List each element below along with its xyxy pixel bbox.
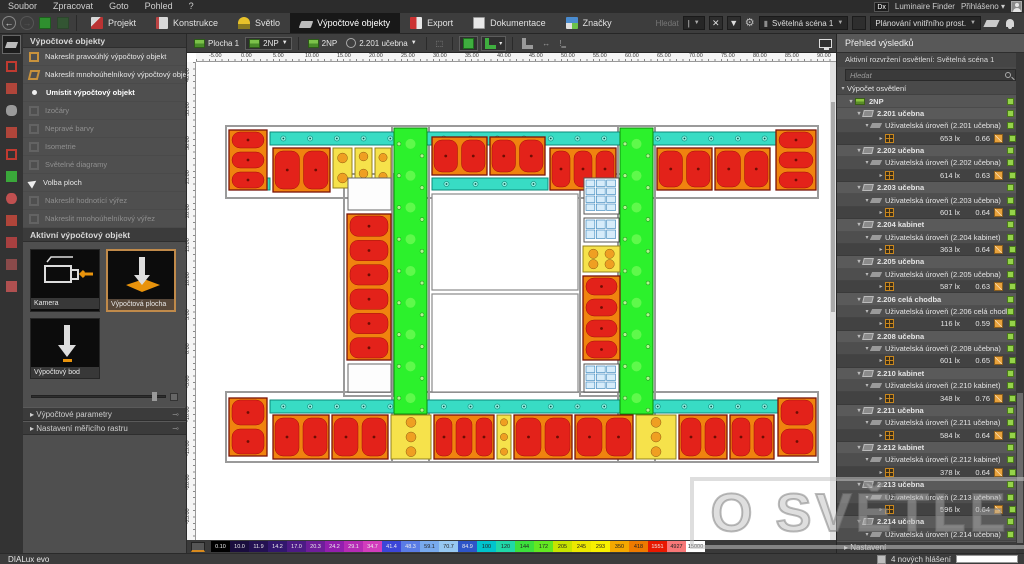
scene-tool-button[interactable] xyxy=(852,16,866,30)
status-green-square xyxy=(1007,382,1014,389)
account-menu[interactable]: Přihlášeno ▾ xyxy=(961,2,1005,11)
chevron-right-icon[interactable]: ▸ xyxy=(877,135,885,142)
legend-segment: 144 xyxy=(515,541,534,552)
raster-icon[interactable] xyxy=(3,278,20,295)
floor-icon xyxy=(855,98,865,105)
chevron-right-icon[interactable]: ▸ xyxy=(877,506,885,513)
status-green-square xyxy=(1007,407,1014,414)
tree-room[interactable]: ▾2.208 učebna xyxy=(837,331,1017,343)
tree-room[interactable]: ▾2.210 kabinet xyxy=(837,368,1017,380)
illuminance-value: 596 lx xyxy=(898,505,960,514)
section-view-button[interactable] xyxy=(519,37,536,50)
grid-result-icon xyxy=(885,505,894,514)
tree-value[interactable]: ▸584 lx0.64 xyxy=(837,430,1017,442)
tree-level[interactable]: ▾Uživatelská úroveň (2.214 učebna) xyxy=(837,529,1017,541)
section-2[interactable]: ▸ Nastavení měřicího rastru⊸ xyxy=(23,421,186,435)
tree-level[interactable]: ▾Uživatelská úroveň (2.210 kabinet) xyxy=(837,380,1017,392)
room-label: 2.205 učebna xyxy=(877,257,1007,266)
display-settings-icon[interactable] xyxy=(819,39,832,48)
tool-item-9: Nakreslit hodnotící výřez xyxy=(23,192,186,210)
legend-segment: 120 xyxy=(496,541,515,552)
room-icon xyxy=(862,407,874,414)
cube-icon[interactable] xyxy=(3,58,20,75)
room-icon xyxy=(862,221,874,228)
poly-icon xyxy=(28,70,40,80)
messages-icon[interactable] xyxy=(877,555,886,564)
plan-room-red[interactable] xyxy=(229,398,267,456)
chevron-right-icon[interactable]: ▸ xyxy=(877,395,885,402)
ruler-v-label: 40.00 xyxy=(185,68,191,82)
annotation-button[interactable]: !‗ xyxy=(556,38,569,49)
plan-room-outline[interactable] xyxy=(432,294,578,392)
results-search-input[interactable]: Hledat xyxy=(845,69,1016,81)
chevron-right-icon[interactable]: ▸ xyxy=(877,246,885,253)
surface-indicator[interactable]: Plocha 1 xyxy=(191,38,242,49)
tool-item-label: Nakreslit mnohoúhelníkový výpočtový obje… xyxy=(45,70,186,79)
level-label: Uživatelská úroveň (2.206 celá chodba) xyxy=(885,307,1007,316)
opening-icon[interactable] xyxy=(3,124,20,141)
gear-icon[interactable]: ⚙ xyxy=(745,16,755,30)
room-icon xyxy=(862,444,874,451)
plan-room-red[interactable] xyxy=(273,415,329,459)
tree-value[interactable]: ▸614 lx0.63 xyxy=(837,170,1017,182)
chevron-down-icon[interactable]: ▾ xyxy=(847,98,855,105)
menu-bar: SouborZpracovatGotoPohled? Dx Luminaire … xyxy=(0,0,1024,13)
tile-v-po-tov-bod[interactable]: Výpočtový bod xyxy=(30,318,100,379)
planning-mode-select[interactable]: Plánování vnitřního prost.▼ xyxy=(870,16,981,30)
tab-label: Světlo xyxy=(255,18,280,28)
plan-room-green[interactable] xyxy=(620,128,653,414)
illuminance-value: 653 lx xyxy=(898,134,960,143)
status-green-square xyxy=(1007,419,1014,426)
tile-kamera[interactable]: Kamera xyxy=(30,249,100,312)
ruler-h-label: 10.00 xyxy=(305,53,319,59)
status-green-square xyxy=(1007,481,1014,488)
tree-room[interactable]: ▾2.211 učebna xyxy=(837,405,1017,417)
tree-room[interactable]: ▾2.212 kabinet xyxy=(837,442,1017,454)
ruler-h-label: -5.00 xyxy=(209,53,222,59)
object-size-slider[interactable] xyxy=(31,392,178,401)
menu-item-goto[interactable]: Goto xyxy=(101,0,137,13)
light-scene-select[interactable]: ▮Světelná scéna 1▼ xyxy=(759,16,849,30)
tree-value[interactable]: ▸601 lx0.64 xyxy=(837,207,1017,219)
plan-room-yellow[interactable] xyxy=(497,415,511,459)
plan-room-white[interactable] xyxy=(348,364,391,392)
results-title: Přehled výsledků xyxy=(837,34,1024,53)
chevron-down-icon[interactable]: ▾ xyxy=(839,85,847,92)
clear-search-button[interactable]: ✕ xyxy=(709,16,723,30)
panel-title: Výpočtové objekty xyxy=(23,34,186,48)
furniture-icon[interactable] xyxy=(3,80,20,97)
wall-icon[interactable] xyxy=(3,234,20,251)
tab-label: Projekt xyxy=(108,18,136,28)
tab-export[interactable]: Export xyxy=(400,13,463,33)
room-label: 2.203 učebna xyxy=(877,183,1007,192)
legend-segment: 245 xyxy=(572,541,591,552)
tree-room[interactable]: ▾2.203 učebna xyxy=(837,182,1017,194)
plan-room-red[interactable] xyxy=(575,415,633,459)
ruler-h-label: 35.00 xyxy=(465,53,479,59)
surface-color-swatch xyxy=(994,245,1003,254)
slider-button[interactable] xyxy=(170,393,178,401)
calculation-objects-tool xyxy=(5,42,18,48)
grid-result-icon xyxy=(885,282,894,291)
tree-level[interactable]: ▾Uživatelská úroveň (2.208 učebna) xyxy=(837,343,1017,355)
legend-segment: 0.10 xyxy=(211,541,230,552)
uniformity-value: 0.64 xyxy=(960,505,990,514)
falsecolor-toggle[interactable] xyxy=(459,36,478,51)
grid-result-icon xyxy=(885,356,894,365)
status-green-square xyxy=(1007,370,1014,377)
legend-segments: 0.1010.011.914.217.020.324.229.134.741.4… xyxy=(211,541,705,552)
plan-room-red[interactable] xyxy=(273,148,330,192)
tree-value[interactable]: ▸116 lx0.59 xyxy=(837,318,1017,330)
status-green-square xyxy=(1007,221,1014,228)
status-green-square xyxy=(1007,147,1014,154)
plan-room-red[interactable] xyxy=(583,276,620,360)
tool-item-label: Nepravé barvy xyxy=(45,124,94,133)
room-contour-icon[interactable] xyxy=(3,146,20,163)
calc-surface-icon xyxy=(870,383,882,388)
calculation-objects-tool[interactable] xyxy=(3,36,20,53)
section-1[interactable]: ▸ Výpočtové parametry⊸ xyxy=(23,407,186,421)
chevron-right-icon[interactable]: ▸ xyxy=(877,209,885,216)
surface-icon xyxy=(194,39,205,48)
tree-room[interactable]: ▾2.205 učebna xyxy=(837,256,1017,268)
tool-item-8[interactable]: Volba ploch xyxy=(23,174,186,192)
plan-room-red[interactable] xyxy=(657,148,712,190)
tab-svetlo[interactable]: Světlo xyxy=(228,13,290,33)
falsecolor-legend-icon[interactable] xyxy=(191,542,205,552)
grid-result-icon xyxy=(885,171,894,180)
menu-item-?[interactable]: ? xyxy=(181,0,202,13)
plan-room-yellow[interactable] xyxy=(583,246,620,272)
v-po-tov-bod-icon xyxy=(31,319,99,367)
window-icon[interactable] xyxy=(3,256,20,273)
ruler-v-label: -15.00 xyxy=(185,440,191,456)
plan-room-green[interactable] xyxy=(394,128,427,414)
dokumentace-icon xyxy=(473,17,485,29)
emergency-sign-icon xyxy=(6,171,17,182)
plan-room-yellow[interactable] xyxy=(391,415,431,459)
illuminance-value: 363 lx xyxy=(898,245,960,254)
plan-room-red[interactable] xyxy=(778,398,816,456)
ghost-icon xyxy=(29,124,39,134)
tool-item-label: Světelné diagramy xyxy=(45,160,107,169)
tool-item-2[interactable]: Nakreslit mnohoúhelníkový výpočtový obje… xyxy=(23,66,186,84)
import-icon[interactable] xyxy=(57,17,69,29)
storey-icon xyxy=(249,39,260,48)
ruler-h-label: 70.00 xyxy=(689,53,703,59)
ruler-h-label: 25.00 xyxy=(401,53,415,59)
floor-label: 2NP xyxy=(869,97,1007,106)
wall-icon xyxy=(6,237,17,248)
notifications-bell-icon[interactable] xyxy=(1006,19,1014,27)
status-green-square xyxy=(1007,333,1014,340)
status-green-square xyxy=(1009,283,1016,290)
search-combo[interactable]: |▼ xyxy=(683,16,705,30)
forward-button[interactable]: → xyxy=(20,16,34,30)
plan-room-cyan[interactable] xyxy=(270,400,778,413)
legend-segment: 84.9 xyxy=(458,541,477,552)
tab-znacky[interactable]: Značky xyxy=(556,13,622,33)
tree-value[interactable]: ▸378 lx0.64 xyxy=(837,467,1017,479)
plan-room-outline[interactable] xyxy=(432,194,578,290)
toolbar-right: Hledat |▼ ✕ ▼ ⚙ ▮Světelná scéna 1▼ Pláno… xyxy=(656,13,1024,33)
tree-level[interactable]: ▾Uživatelská úroveň (2.201 učebna) xyxy=(837,120,1017,132)
ruler-h-label: 90.00 xyxy=(817,53,831,59)
room-label: 2.213 učebna xyxy=(877,480,1007,489)
tree-value[interactable]: ▸601 lx0.65 xyxy=(837,355,1017,367)
plan-room-red[interactable] xyxy=(776,130,816,190)
level-label: Uživatelská úroveň (2.203 učebna) xyxy=(885,196,1007,205)
plan-room-red[interactable] xyxy=(730,415,774,459)
emergency-sign-icon[interactable] xyxy=(3,168,20,185)
plan-room-util[interactable] xyxy=(584,364,619,392)
illuminance-value: 601 lx xyxy=(898,356,960,365)
room-label: 2.208 učebna xyxy=(877,332,1007,341)
legend-segment: 1551 xyxy=(648,541,667,552)
uniformity-value: 0.64 xyxy=(960,468,990,477)
pin-icon: ⊸ xyxy=(172,422,179,434)
tree-room[interactable]: ▾2.206 celá chodba xyxy=(837,293,1017,305)
storey-select[interactable]: 2NP▼ xyxy=(245,37,292,50)
tree-room[interactable]: ▾2.201 učebna xyxy=(837,108,1017,120)
room-label: 2.201 učebna xyxy=(877,109,1007,118)
plan-room-util[interactable] xyxy=(584,178,619,214)
status-input[interactable] xyxy=(956,555,1018,563)
plan-room-red[interactable] xyxy=(490,137,545,175)
level-label: Uživatelská úroveň (2.214 učebna) xyxy=(885,530,1007,539)
tree-value[interactable]: ▸348 lx0.76 xyxy=(837,392,1017,404)
cad-viewport[interactable]: -5.000.005.0010.0015.0020.0025.0030.0035… xyxy=(187,53,836,540)
ruler-v-label: 30.00 xyxy=(185,136,191,150)
luminaire-finder-link[interactable]: Luminaire Finder xyxy=(895,2,955,11)
active-object-tiles: KameraVýpočtová plochaVýpočtový bod xyxy=(23,242,186,386)
tool-item-1[interactable]: Nakreslit pravoúhlý výpočtový objekt xyxy=(23,48,186,66)
menu-item-soubor[interactable]: Soubor xyxy=(0,0,45,13)
status-green-square xyxy=(1009,432,1016,439)
tab-vypocet[interactable]: Výpočtové objekty xyxy=(290,13,400,33)
plan-room-red[interactable] xyxy=(332,415,388,459)
chevron-right-icon[interactable]: ▸ xyxy=(877,283,885,290)
tree-value[interactable]: ▸363 lx0.64 xyxy=(837,244,1017,256)
results-scrollbar[interactable] xyxy=(1016,53,1024,553)
room-icon xyxy=(862,370,874,377)
tab-dokumentace[interactable]: Dokumentace xyxy=(463,13,556,33)
tree-level[interactable]: ▾Uživatelská úroveň (2.202 učebna) xyxy=(837,157,1017,169)
tab-label: Značky xyxy=(583,18,612,28)
menu-item-pohled[interactable]: Pohled xyxy=(137,0,181,13)
tree-root[interactable]: ▾Výpočet osvětlení xyxy=(837,83,1017,95)
settings-section[interactable]: ▸ Nastavení xyxy=(837,541,1017,553)
tree-room[interactable]: ▾2.213 učebna xyxy=(837,479,1017,491)
legend-segment: 10.0 xyxy=(230,541,249,552)
slider-thumb[interactable] xyxy=(152,392,157,401)
tile-v-po-tov-plocha[interactable]: Výpočtová plocha xyxy=(106,249,176,312)
tree-room[interactable]: ▾2.214 učebna xyxy=(837,516,1017,528)
surface-color-swatch xyxy=(994,319,1003,328)
search-options-button[interactable]: ▼ xyxy=(727,16,741,30)
surface-color-swatch xyxy=(994,208,1003,217)
opening-icon xyxy=(6,127,17,138)
raster-view-button[interactable]: ⬚ xyxy=(433,38,447,49)
surface-tool-icon[interactable] xyxy=(983,20,999,27)
tree-level[interactable]: ▾Uživatelská úroveň (2.213 učebna) xyxy=(837,491,1017,503)
chevron-right-icon[interactable]: ▸ xyxy=(877,357,885,364)
ghost-icon xyxy=(29,196,39,206)
room-select[interactable]: 2.201 učebna▼ xyxy=(343,37,419,49)
plan-room-yellow[interactable] xyxy=(636,415,676,459)
ruler-v-label: 25.00 xyxy=(185,170,191,184)
legend-segment: 15000 xyxy=(686,541,705,552)
tree-level[interactable]: ▾Uživatelská úroveň (2.205 učebna) xyxy=(837,269,1017,281)
tree-floor[interactable]: ▾2NP xyxy=(837,95,1017,107)
plan-room-red[interactable] xyxy=(679,415,727,459)
tool-item-list: Nakreslit pravoúhlý výpočtový objektNakr… xyxy=(23,48,186,228)
plan-room-util[interactable] xyxy=(584,218,619,242)
ghost-icon xyxy=(29,142,39,152)
plan-room-red[interactable] xyxy=(514,415,572,459)
legend-segment: 100 xyxy=(477,541,496,552)
plan-view-toggle[interactable]: ▾ xyxy=(481,36,506,51)
room-icon xyxy=(862,333,874,340)
legend-segment: 17.0 xyxy=(287,541,306,552)
tree-value[interactable]: ▸596 lx0.64 xyxy=(837,504,1017,516)
status-green-square xyxy=(1009,246,1016,253)
tree-level[interactable]: ▾Uživatelská úroveň (2.203 učebna) xyxy=(837,194,1017,206)
ruler-h-label: 60.00 xyxy=(625,53,639,59)
grid-result-icon xyxy=(885,468,894,477)
plan-room-red[interactable] xyxy=(715,148,770,190)
section-label: Nastavení měřicího rastru xyxy=(36,422,128,434)
ruler-h-label: 40.00 xyxy=(497,53,511,59)
chevron-right-icon[interactable]: ▸ xyxy=(877,172,885,179)
tree-level[interactable]: ▾Uživatelská úroveň (2.212 kabinet) xyxy=(837,454,1017,466)
uniformity-value: 0.64 xyxy=(960,208,990,217)
plan-room-red[interactable] xyxy=(347,214,391,360)
ruler-v-label: -25.00 xyxy=(185,508,191,524)
horizontal-ruler: -5.000.005.0010.0015.0020.0025.0030.0035… xyxy=(196,53,836,62)
messages-count[interactable]: 4 nových hlášení xyxy=(891,555,951,564)
level-label: Uživatelská úroveň (2.201 učebna) xyxy=(885,121,1007,130)
illuminance-value: 614 lx xyxy=(898,171,960,180)
plan-room-red[interactable] xyxy=(434,415,494,459)
status-green-square xyxy=(1009,172,1016,179)
tool-item-label: Nakreslit hodnotící výřez xyxy=(45,196,127,205)
level-label: Uživatelská úroveň (2.208 učebna) xyxy=(885,344,1007,353)
menu-item-zpracovat[interactable]: Zpracovat xyxy=(45,0,101,13)
floor-plan[interactable] xyxy=(196,62,836,540)
visibility-eye-icon xyxy=(6,193,17,204)
legend-segment: 59.1 xyxy=(420,541,439,552)
tree-value[interactable]: ▸587 lx0.63 xyxy=(837,281,1017,293)
legend-segment: 20.3 xyxy=(306,541,325,552)
chevron-right-icon[interactable]: ▸ xyxy=(877,320,885,327)
tree-level[interactable]: ▾Uživatelská úroveň (2.211 učebna) xyxy=(837,417,1017,429)
status-green-square xyxy=(1007,159,1014,166)
chevron-right-icon[interactable]: ▸ xyxy=(877,432,885,439)
ruler-h-label: 50.00 xyxy=(561,53,575,59)
tree-level[interactable]: ▾Uživatelská úroveň (2.204 kabinet) xyxy=(837,232,1017,244)
plan-room-yellow[interactable] xyxy=(355,148,372,182)
tree-value[interactable]: ▸653 lx0.66 xyxy=(837,133,1017,145)
ruler-v-label: 5.00 xyxy=(185,309,191,320)
chevron-right-icon[interactable]: ▸ xyxy=(877,469,885,476)
storey-label[interactable]: 2NP xyxy=(305,38,341,49)
room-label: 2.206 celá chodba xyxy=(877,295,1007,304)
level-label: Uživatelská úroveň (2.202 učebna) xyxy=(885,158,1007,167)
user-avatar[interactable] xyxy=(1011,1,1022,12)
calculation-objects-panel: Výpočtové objekty Nakreslit pravoúhlý vý… xyxy=(23,34,187,553)
uniformity-value: 0.64 xyxy=(960,431,990,440)
tab-konstrukce[interactable]: Konstrukce xyxy=(146,13,228,33)
section-icon[interactable] xyxy=(3,212,20,229)
active-light-layout: Aktivní rozvržení osvětlení: Světelná sc… xyxy=(837,53,1024,67)
ruler-h-label: 30.00 xyxy=(433,53,447,59)
room-icon xyxy=(862,481,874,488)
tree-room[interactable]: ▾2.204 kabinet xyxy=(837,219,1017,231)
tool-item-3[interactable]: Umístit výpočtový objekt xyxy=(23,84,186,102)
plan-room-red[interactable] xyxy=(229,130,267,190)
room-label: 2.211 učebna xyxy=(877,406,1007,415)
status-green-square xyxy=(1007,184,1014,191)
visibility-eye-icon[interactable] xyxy=(3,190,20,207)
status-green-square xyxy=(1009,357,1016,364)
column-icon[interactable] xyxy=(3,102,20,119)
section-label: Výpočtové parametry xyxy=(36,408,112,420)
tool-item-label: Izočáry xyxy=(45,106,69,115)
illuminance-value: 601 lx xyxy=(898,208,960,217)
uniformity-value: 0.63 xyxy=(960,282,990,291)
tile-label: Výpočtová plocha xyxy=(108,299,174,310)
svetlo-icon xyxy=(238,17,250,29)
room-label: 2.210 kabinet xyxy=(877,369,1007,378)
tree-level[interactable]: ▾Uživatelská úroveň (2.206 celá chodba) xyxy=(837,306,1017,318)
calc-surface-icon xyxy=(870,420,882,425)
ruler-h-label: 80.00 xyxy=(753,53,767,59)
status-green-square xyxy=(1009,209,1016,216)
uniformity-value: 0.59 xyxy=(960,319,990,328)
status-green-square xyxy=(1007,234,1014,241)
tree-room[interactable]: ▾2.202 učebna xyxy=(837,145,1017,157)
uniformity-value: 0.63 xyxy=(960,171,990,180)
save-icon[interactable] xyxy=(39,17,51,29)
surface-color-swatch xyxy=(994,171,1003,180)
legend-segment: 14.2 xyxy=(268,541,287,552)
room-contour-icon xyxy=(6,149,17,160)
calc-surface-icon xyxy=(870,198,882,203)
column-icon xyxy=(6,105,17,116)
tab-projekt[interactable]: Projekt xyxy=(81,13,146,33)
plan-room-cyan[interactable] xyxy=(432,178,548,190)
plan-room-red[interactable] xyxy=(432,137,487,175)
bullet-icon xyxy=(32,90,37,95)
ruler-v-label: 20.00 xyxy=(185,204,191,218)
surface-color-swatch xyxy=(994,468,1003,477)
collapsed-sections: ▸ Výpočtové parametry⊸▸ Nastavení měřicí… xyxy=(23,407,186,435)
ruler-h-label: 65.00 xyxy=(657,53,671,59)
measure-button[interactable]: ↔ xyxy=(539,38,553,49)
search-icon xyxy=(1005,72,1011,78)
room-icon xyxy=(862,110,874,117)
legend-segment: 11.9 xyxy=(249,541,268,552)
back-button[interactable]: ← xyxy=(2,16,16,30)
ruler-h-label: 85.00 xyxy=(785,53,799,59)
furniture-icon xyxy=(6,83,17,94)
plan-room-white[interactable] xyxy=(348,178,391,210)
calc-surface-icon xyxy=(870,346,882,351)
